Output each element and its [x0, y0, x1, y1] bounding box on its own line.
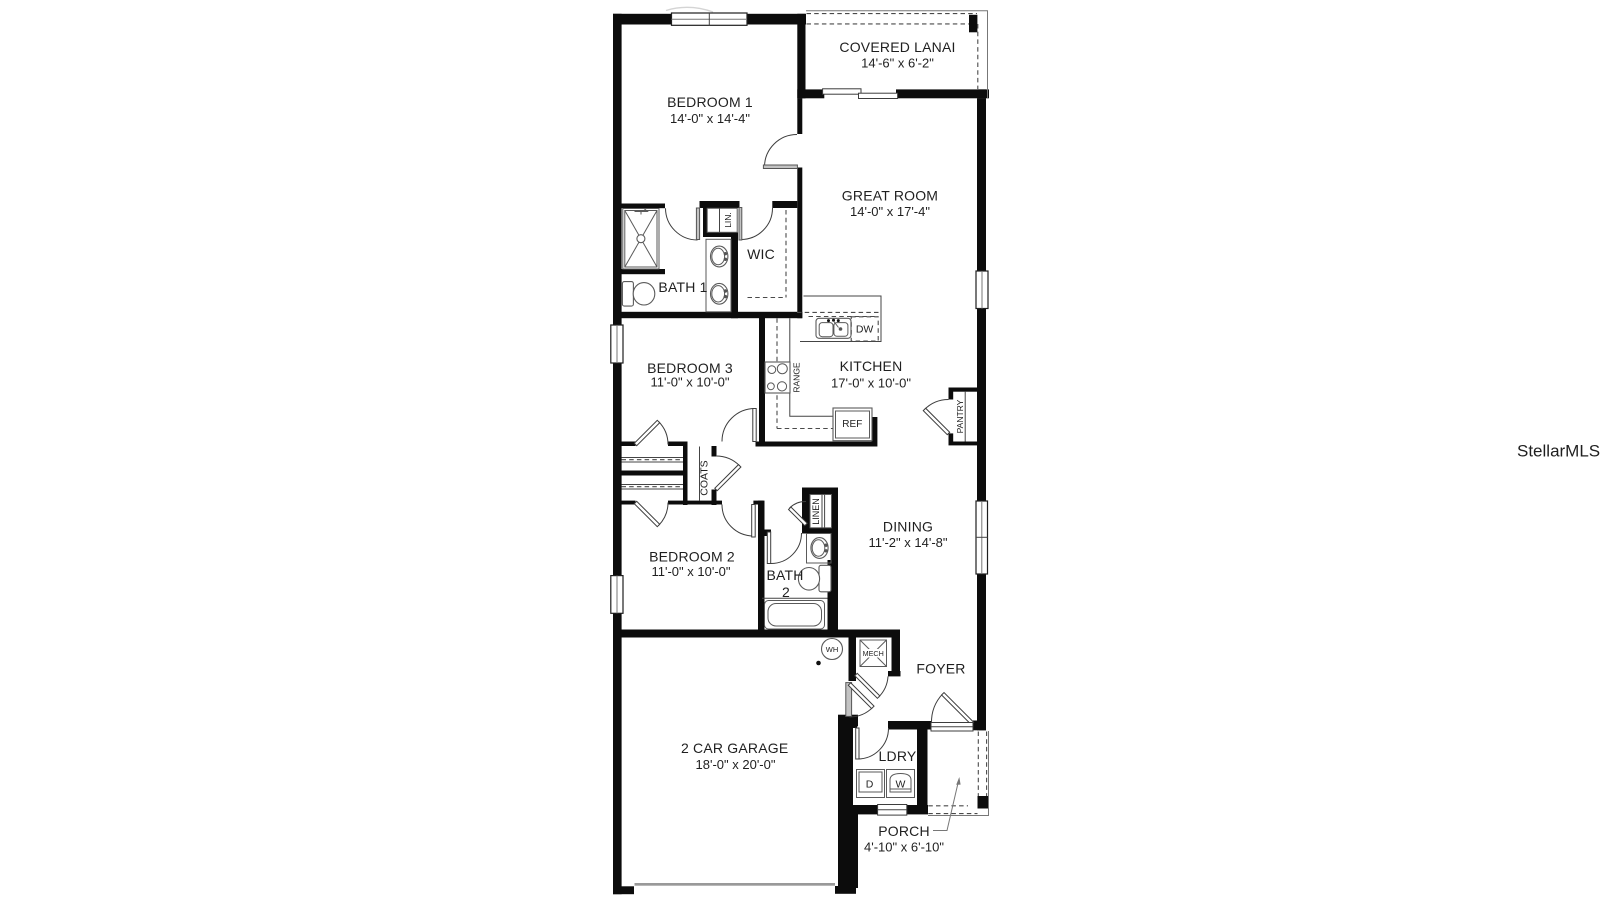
svg-text:14'-0" x 17'-4": 14'-0" x 17'-4": [850, 204, 930, 219]
svg-text:REF: REF: [842, 419, 862, 430]
svg-text:14'-6" x 6'-2": 14'-6" x 6'-2": [861, 56, 934, 71]
svg-text:PORCH: PORCH: [878, 823, 930, 839]
svg-text:4'-10" x 6'-10": 4'-10" x 6'-10": [864, 840, 944, 855]
svg-text:WIC: WIC: [747, 246, 775, 262]
svg-text:W: W: [896, 779, 906, 791]
svg-text:11'-0" x 10'-0": 11'-0" x 10'-0": [651, 375, 730, 390]
svg-text:2 CAR GARAGE: 2 CAR GARAGE: [681, 740, 788, 756]
svg-text:LIN.: LIN.: [723, 212, 733, 228]
svg-text:11'-0" x 10'-0": 11'-0" x 10'-0": [652, 564, 731, 579]
svg-text:PANTRY: PANTRY: [955, 399, 965, 433]
svg-text:FOYER: FOYER: [916, 661, 965, 677]
svg-text:StellarMLS: StellarMLS: [1517, 442, 1600, 461]
svg-text:14'-0" x 14'-4": 14'-0" x 14'-4": [670, 111, 750, 126]
svg-text:D: D: [866, 779, 874, 791]
svg-text:17'-0" x 10'-0": 17'-0" x 10'-0": [831, 376, 911, 391]
svg-text:BEDROOM 2: BEDROOM 2: [649, 549, 735, 565]
svg-text:KITCHEN: KITCHEN: [840, 358, 903, 374]
svg-text:DW: DW: [856, 324, 874, 336]
svg-text:LDRY: LDRY: [879, 748, 917, 764]
svg-text:COATS: COATS: [699, 460, 711, 495]
svg-text:11'-2" x 14'-8": 11'-2" x 14'-8": [869, 535, 948, 550]
svg-text:18'-0" x 20'-0": 18'-0" x 20'-0": [696, 757, 776, 772]
svg-text:BATH 1: BATH 1: [658, 279, 707, 295]
svg-text:2: 2: [782, 584, 790, 600]
svg-text:BEDROOM 1: BEDROOM 1: [667, 94, 753, 110]
svg-text:BATH: BATH: [766, 567, 803, 583]
svg-text:GREAT ROOM: GREAT ROOM: [842, 188, 938, 204]
svg-text:WH: WH: [826, 645, 839, 654]
svg-text:MECH: MECH: [863, 649, 884, 658]
svg-text:DINING: DINING: [883, 519, 933, 535]
svg-text:COVERED LANAI: COVERED LANAI: [839, 39, 955, 55]
svg-text:RANGE: RANGE: [791, 362, 801, 393]
svg-text:LINEN: LINEN: [811, 498, 821, 525]
